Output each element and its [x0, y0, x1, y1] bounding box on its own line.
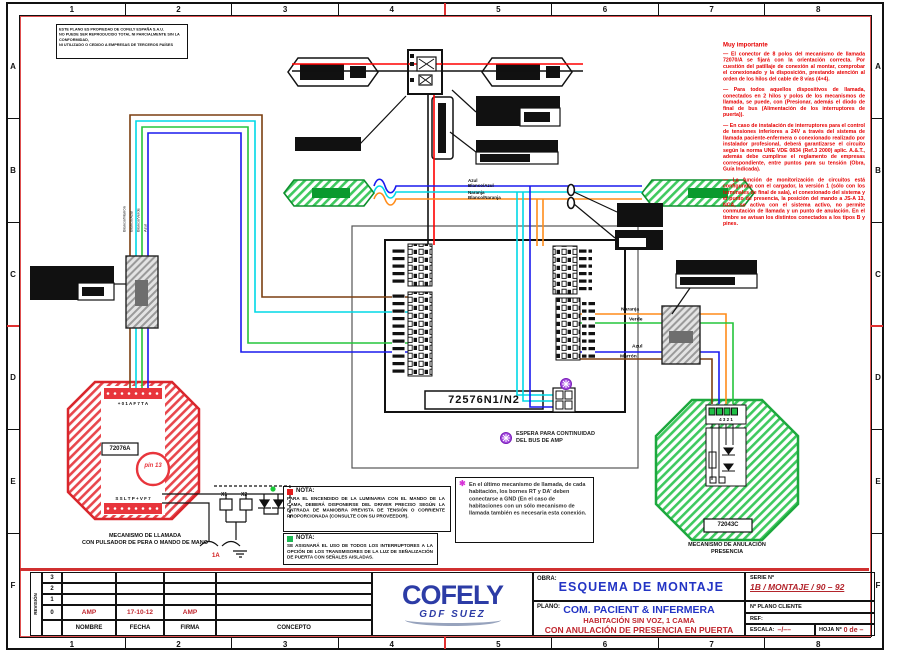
rev-cell: [62, 594, 116, 605]
wire-loop-blue: [148, 133, 409, 389]
plano-cell: PLANO: COM. PACIENT & INFERMERA HABITACI…: [533, 601, 745, 636]
note-green-icon: [287, 536, 293, 542]
junction-box: [408, 50, 442, 94]
wire-label-blanco-verde: Blanco/Verde: [136, 208, 141, 232]
relay-x1-label: X1: [221, 492, 227, 498]
important-notes: Muy importante — El conector de 8 polos …: [723, 41, 865, 227]
rev-cell: [164, 583, 216, 594]
note-asterisk-icon: ✱: [459, 479, 466, 488]
cable-duct-top-left: [288, 58, 378, 86]
rev-num-0: 0: [42, 605, 62, 620]
bus-connectors: [568, 185, 575, 209]
rev-cell: [116, 572, 164, 583]
note-red-icon: [287, 489, 293, 495]
serie-label: SERIE Nº: [750, 575, 774, 581]
revision-side-cell: REVISIÓN: [30, 572, 42, 636]
switch-tag: 1A: [212, 553, 220, 559]
bus-wire-labels: AzulBlanco/Azul NaranjaBlanco/Naranja: [468, 178, 528, 200]
call-device-label: 72076A: [102, 446, 138, 452]
rev-header-concepto: CONCEPTO: [216, 620, 372, 636]
rev-value-fecha: 17-10-12: [116, 605, 164, 620]
plano-sub2: CON ANULACIÓN DE PRESENCIA EN PUERTA: [545, 625, 734, 635]
logo-box: COFELY GDF SUEZ: [372, 572, 533, 636]
rev-value-firma: AMP: [164, 605, 216, 620]
revision-side-label: REVISIÓN: [34, 593, 39, 615]
rev-cell: [216, 572, 372, 583]
call-caption: MECANISMO DE LLAMADACON PULSADOR DE PERA…: [35, 533, 255, 548]
obra-value: ESQUEMA DE MONTAJE: [559, 580, 724, 594]
hoja-label: HOJA Nº: [819, 627, 842, 633]
escala-cell: ESCALA: –/––: [745, 624, 815, 636]
note-3-text: En el último mecanismo de llamada, de ca…: [469, 481, 587, 517]
wire-loop-brown: [130, 115, 409, 389]
green-conduit-left: [284, 180, 374, 206]
wire-label-blanco-azul: Blanco/Azul: [129, 211, 134, 232]
rev-num-1: 1: [42, 594, 62, 605]
rev-value-nombre: AMP: [62, 605, 116, 620]
cancel-caption: MECANISMO DE ANULACIÓNPRESENCIA: [657, 542, 797, 557]
serie-value: 1B / MONTAJE / 90 – 92: [750, 582, 844, 592]
cancel-terms: 4 3 2 1: [706, 417, 746, 422]
wire-loop-cyan: [136, 121, 409, 389]
rev-cell: [164, 594, 216, 605]
rev-header-nombre: NOMBRE: [62, 620, 116, 636]
cable-sheath: [432, 97, 453, 159]
ref-label: REF:: [750, 616, 763, 622]
relay-x2-label: X2: [241, 492, 247, 498]
wall-box-left: [126, 256, 158, 328]
plano-label: PLANO:: [537, 604, 560, 610]
cable-duct-top-right: [482, 58, 572, 86]
escala-label: ESCALA:: [750, 627, 774, 633]
rev-cell: [216, 583, 372, 594]
rev-cell: [164, 572, 216, 583]
title-block: REVISIÓN 3 2 1 0 AMP 17-10-12 AMP NOMBRE…: [30, 572, 875, 636]
rev-cell: [42, 620, 62, 636]
rev-cell: [116, 583, 164, 594]
hoja-value: 0 de –: [844, 627, 864, 634]
rev-cell: [216, 594, 372, 605]
rev-num-3: 3: [42, 572, 62, 583]
call-pin-badge: pin 13: [141, 463, 165, 470]
note-2-text: SE ASIGNARÁ EL USO DE TODOS LOS INTERRUP…: [287, 543, 433, 560]
obra-cell: OBRA: ESQUEMA DE MONTAJE: [533, 572, 745, 601]
wire-label-marron: Marrón: [620, 353, 637, 359]
serie-cell: SERIE Nº 1B / MONTAJE / 90 – 92: [745, 572, 875, 601]
call-top-terms: + 0 1 A F 7 T A: [104, 401, 162, 406]
plano-value: COM. PACIENT & INFERMERA: [563, 604, 714, 616]
wire-label-azul-r: Azul: [632, 343, 642, 349]
wall-box-right: [662, 306, 700, 364]
wire-label-verde: Verde: [629, 316, 642, 322]
wire-label-naranja: Naranja: [621, 306, 639, 312]
escala-value: –/––: [777, 627, 791, 634]
disclaimer-text: ESTE PLANO ES PROPIEDAD DE COFELY ESPAÑA…: [59, 27, 185, 48]
rev-header-fecha: FECHA: [116, 620, 164, 636]
rev-cell: [216, 605, 372, 620]
nplano-cell: Nº PLANO CLIENTE: [745, 601, 875, 613]
wire-label-blanco-marron: Blanco/Marrón: [122, 206, 127, 232]
cancel-device-label: 72043C: [704, 522, 752, 528]
drawing-sheet: 1 2 3 4 5 6 7 8 1 2 3 4 5 6 7 8 A B C D …: [0, 0, 900, 652]
rev-cell: [116, 594, 164, 605]
note-1-text: PARA EL ENCENDIDO DE LA LUMINARIA CON EL…: [287, 496, 445, 519]
nplano-label: Nº PLANO CLIENTE: [750, 604, 802, 610]
central-unit-label: 72576N1/N2: [425, 394, 543, 406]
wire-loop-green: [142, 127, 409, 389]
important-title: Muy importante: [723, 41, 865, 48]
obra-label: OBRA:: [537, 576, 557, 582]
wire-label-azul: Azul: [143, 224, 148, 232]
rev-cell: [62, 583, 116, 594]
hoja-cell: HOJA Nº 0 de –: [815, 624, 875, 636]
call-bottom-terms: S S L T P + V F 7: [104, 496, 162, 501]
bus-continuity-note: ESPERA PARA CONTINUIDADDEL BUS DE AMP: [516, 431, 595, 445]
note-2-title: NOTA:: [296, 535, 315, 541]
ref-cell: REF:: [745, 613, 875, 624]
note-1-title: NOTA:: [296, 488, 315, 494]
rev-cell: [62, 572, 116, 583]
cofely-logo: COFELY: [402, 582, 503, 609]
logo-swoosh: [405, 614, 501, 626]
rev-num-2: 2: [42, 583, 62, 594]
rev-header-firma: FIRMA: [164, 620, 216, 636]
plano-sub1: HABITACIÓN SIN VOZ, 1 CAMA: [583, 616, 695, 625]
